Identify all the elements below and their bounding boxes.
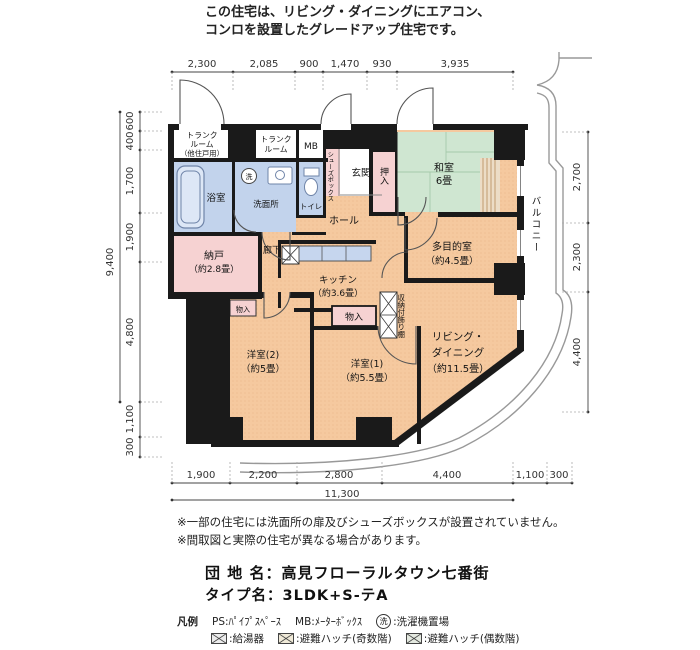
dimension-left: 600 400 1,700 1,900 4,800 1,100 300 9,40… bbox=[105, 111, 164, 459]
label-living-3: （約11.5畳） bbox=[427, 362, 489, 375]
legend-heading: 凡例 bbox=[177, 614, 198, 629]
dim-bottom-0: 1,900 bbox=[187, 470, 216, 481]
dim-top-0: 2,300 bbox=[188, 59, 217, 70]
dim-left-6: 300 bbox=[125, 437, 136, 456]
dim-top-5: 3,935 bbox=[441, 59, 470, 70]
legend-row2: :給湯器 :避難ハッチ(奇数階) :避難ハッチ(偶数階) bbox=[177, 630, 520, 647]
legend-ps: PS:ﾊﾟｲﾌﾟｽﾍﾟｰｽ bbox=[212, 614, 281, 629]
dim-right-2: 4,400 bbox=[572, 338, 583, 367]
dim-left-total: 9,400 bbox=[105, 248, 116, 277]
label-balcony: バルコニー bbox=[530, 196, 540, 254]
dim-left-2: 1,700 bbox=[125, 167, 136, 196]
legend-mb: MB:ﾒｰﾀｰﾎﾞｯｸｽ bbox=[295, 614, 362, 629]
label-oshiire: 押入 bbox=[378, 167, 387, 185]
legend-boiler: :給湯器 bbox=[211, 631, 264, 646]
hatch-even-symbol-icon bbox=[406, 633, 422, 644]
label-washitsu-1: 和室 bbox=[434, 161, 454, 174]
dim-left-1: 400 bbox=[125, 131, 136, 150]
type-name-line: タイプ名：3LDK+S-テA bbox=[205, 585, 489, 608]
legend-washing-place-label: :洗濯機置場 bbox=[393, 614, 449, 629]
footnote-line1: ※一部の住宅には洗面所の扉及びシューズボックスが設置されていません。 bbox=[177, 513, 565, 531]
title-block: 団 地 名：高見フローラルタウン七番街 タイプ名：3LDK+S-テA bbox=[205, 562, 489, 608]
floor-plan-drawing: 洗 bbox=[0, 0, 700, 650]
dim-left-4: 4,800 bbox=[125, 318, 136, 347]
label-trunk-other-3: （他住戸用） bbox=[180, 149, 224, 158]
label-kitchen-2: （約3.6畳） bbox=[313, 287, 363, 299]
label-west-room2-1: 洋室(2) bbox=[247, 349, 279, 361]
label-corridor: 廊下 bbox=[263, 244, 281, 256]
label-multipurpose-1: 多目的室 bbox=[432, 240, 472, 253]
label-mb: MB bbox=[304, 142, 318, 152]
legend-hatch-odd: :避難ハッチ(奇数階) bbox=[278, 631, 392, 646]
legend-hatch-even-label: :避難ハッチ(偶数階) bbox=[424, 631, 520, 646]
washing-machine-icon: 洗 bbox=[242, 169, 257, 184]
dimension-top: 2,300 2,085 900 1,470 930 3,935 bbox=[171, 59, 515, 92]
label-nando-2: （約2.8畳） bbox=[189, 263, 239, 275]
dim-top-3: 1,470 bbox=[331, 59, 360, 70]
boiler-symbol-icon bbox=[211, 633, 227, 644]
footnote-line2: ※間取図と実際の住宅が異なる場合があります。 bbox=[177, 531, 565, 549]
type-name-value: 3LDK+S-テA bbox=[283, 588, 389, 604]
label-multipurpose-2: （約4.5畳） bbox=[425, 255, 478, 267]
label-hall: ホール bbox=[329, 215, 359, 227]
label-shoe-box: シューズボックス bbox=[326, 151, 332, 201]
legend-hatch-odd-label: :避難ハッチ(奇数階) bbox=[296, 631, 392, 646]
dim-bottom-total: 11,300 bbox=[325, 489, 360, 500]
label-washroom: 洗面所 bbox=[253, 199, 279, 210]
dim-bottom-3: 4,400 bbox=[433, 470, 462, 481]
legend-hatch-even: :避難ハッチ(偶数階) bbox=[406, 631, 520, 646]
type-name-label: タイプ名： bbox=[205, 588, 283, 604]
hatch-odd-symbol-icon bbox=[278, 633, 294, 644]
dim-right-0: 2,700 bbox=[572, 163, 583, 192]
label-living-2: ダイニング bbox=[432, 346, 485, 359]
legend-washing-place: 洗 :洗濯機置場 bbox=[376, 614, 449, 629]
label-toilet: トイレ bbox=[300, 202, 322, 211]
label-trunk-other-2: ルーム bbox=[190, 140, 213, 149]
dim-bottom-5: 300 bbox=[549, 470, 568, 481]
label-bath: 浴室 bbox=[206, 192, 225, 204]
dim-right-1: 2,300 bbox=[572, 243, 583, 272]
label-west-room2-2: （約5畳） bbox=[241, 363, 285, 375]
legend: 凡例 PS:ﾊﾟｲﾌﾟｽﾍﾟｰｽ MB:ﾒｰﾀｰﾎﾞｯｸｽ 洗 :洗濯機置場 :… bbox=[177, 613, 520, 647]
label-trunk-2: ルーム bbox=[264, 145, 287, 154]
label-living-1: リビング・ bbox=[432, 330, 485, 343]
header-note: この住宅は、リビング・ダイニングにエアコン、 コンロを設置したグレードアップ住宅… bbox=[205, 4, 490, 39]
label-entrance: 玄関 bbox=[351, 167, 370, 179]
washing-machine-label: 洗 bbox=[246, 172, 253, 181]
bathtub-icon bbox=[177, 166, 204, 228]
legend-row1: 凡例 PS:ﾊﾟｲﾌﾟｽﾍﾟｰｽ MB:ﾒｰﾀｰﾎﾞｯｸｽ 洗 :洗濯機置場 bbox=[177, 613, 520, 630]
label-west-room1-2: （約5.5畳） bbox=[340, 372, 393, 384]
estate-name-label: 団 地 名： bbox=[205, 564, 281, 582]
label-kitchen-1: キッチン bbox=[319, 275, 357, 286]
estate-name-value: 高見フローラルタウン七番街 bbox=[281, 564, 489, 582]
dim-left-3: 1,900 bbox=[125, 223, 136, 252]
header-note-line2: コンロを設置したグレードアップ住宅です。 bbox=[205, 22, 490, 40]
estate-name-line: 団 地 名：高見フローラルタウン七番街 bbox=[205, 562, 489, 585]
kitchen-counter-icon bbox=[282, 246, 371, 264]
label-storage1: 物入 bbox=[236, 305, 250, 314]
dim-left-0: 600 bbox=[125, 111, 136, 130]
label-nando-1: 納戸 bbox=[204, 249, 224, 262]
label-washitsu-2: 6畳 bbox=[436, 175, 452, 187]
dim-top-1: 2,085 bbox=[250, 59, 279, 70]
dim-bottom-4: 1,100 bbox=[516, 470, 545, 481]
label-storage2: 物入 bbox=[345, 311, 363, 323]
dim-bottom-2: 2,800 bbox=[325, 470, 354, 481]
dim-left-5: 1,100 bbox=[125, 405, 136, 434]
dim-top-4: 930 bbox=[372, 59, 391, 70]
label-trunk-other-1: トランク bbox=[186, 131, 217, 140]
footnotes: ※一部の住宅には洗面所の扉及びシューズボックスが設置されていません。 ※間取図と… bbox=[177, 513, 565, 549]
dimension-right: 2,700 2,300 4,400 bbox=[562, 131, 589, 414]
header-note-line1: この住宅は、リビング・ダイニングにエアコン、 bbox=[205, 4, 490, 22]
sink-icon bbox=[268, 167, 292, 184]
dim-top-2: 900 bbox=[299, 59, 318, 70]
label-west-room1-1: 洋室(1) bbox=[351, 358, 383, 370]
washing-machine-symbol-icon: 洗 bbox=[376, 614, 391, 629]
legend-boiler-label: :給湯器 bbox=[229, 631, 264, 646]
storage-shelf-icon bbox=[380, 292, 397, 338]
label-trunk-1: トランク bbox=[260, 135, 291, 144]
dim-bottom-1: 2,200 bbox=[249, 470, 278, 481]
label-storage-shelf: 収納付飾り棚 bbox=[398, 294, 405, 338]
floor-plan-page: 洗 bbox=[0, 0, 700, 650]
